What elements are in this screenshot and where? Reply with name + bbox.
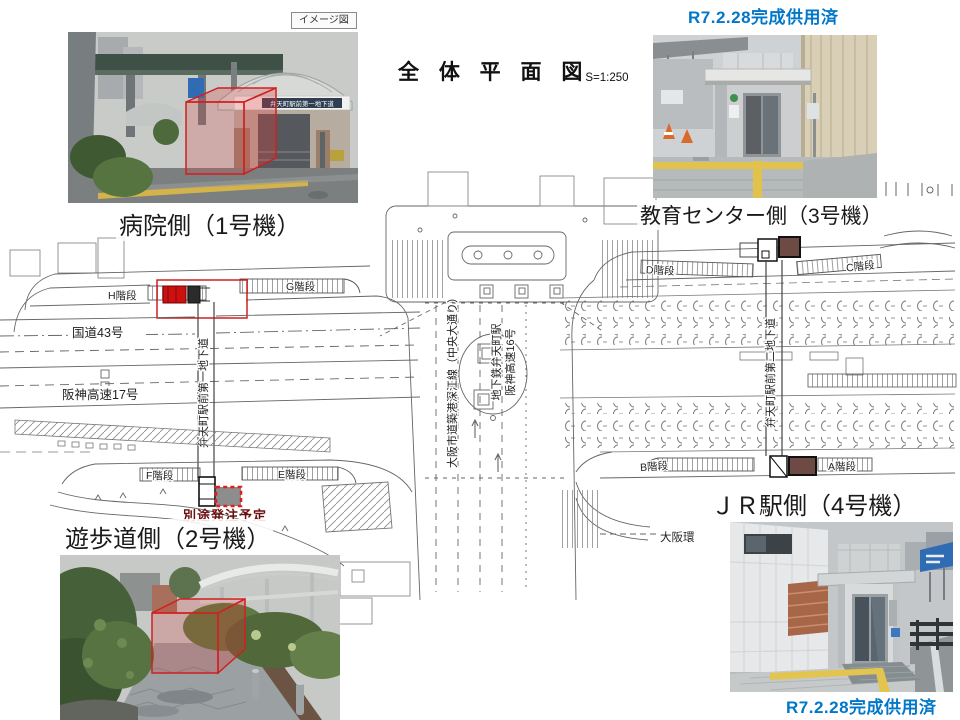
caption-unit4: ＪＲ駅側（4号機） [708,486,919,521]
photo-unit4-jr-station-side [730,522,953,692]
photo-unit3-education-center-side [653,35,877,198]
photo-unit2-promenade-side [60,555,340,720]
plan-buildings-northwest [10,238,124,278]
photo-unit4-art [730,522,953,692]
unit2-marker [199,477,241,506]
label-subway-station: 地下鉄弁天町駅 [489,324,503,401]
label-stair-h: H階段 [108,289,137,302]
photo-unit3-art [653,35,877,198]
label-route43: 国道43号 [72,326,123,340]
caption-unit1: 病院側（1号機） [116,206,303,241]
status-bottom-right: R7.2.28完成供用済 [786,693,937,718]
label-stair-f: F階段 [146,469,174,482]
label-chuo-odori: 大阪市道築港深江線（中央大通り） [445,292,459,468]
label-stair-a: A階段 [828,460,857,473]
label-hanshin16: 阪神高速16号 [503,328,517,395]
page-title: 全 体 平 面 図S=1:250 [398,56,629,86]
page-title-scale: S=1:250 [585,72,628,84]
caption-unit2: 遊歩道側（2号機） [62,519,273,554]
plan-rail-ticks-northeast [886,182,952,196]
photo-unit1-signboard: 弁天町駅前第一地下道 [270,99,335,108]
label-hanshin17: 阪神高速17号 [62,387,138,402]
photo-unit2-highlight-box [152,599,245,673]
label-stair-d: D階段 [646,263,676,278]
photo-unit1-highlight-box [186,88,276,174]
label-underpass2: 弁天町駅前第二地下道 [763,318,777,428]
label-osaka-loop-partial: 大阪環 [660,530,695,544]
plan-median-island [380,172,658,336]
plan-north-sidewalk-left [14,266,408,332]
plan-southwest-hatch [0,420,330,452]
slide: H階段 G階段 [0,0,960,720]
page-title-text: 全 体 平 面 図 [398,61,589,84]
caption-unit3: 教育センター側（3号機） [637,200,886,230]
image-figure-tag: イメージ図 [291,12,357,29]
photo-unit1-hospital-side: 弁天町駅前第一地下道 [68,32,358,203]
plan-railway-zone [560,279,956,452]
photo-unit1-art: 弁天町駅前第一地下道 [68,32,358,203]
unit4-marker [770,456,816,477]
photo-unit2-art [60,555,340,720]
label-stair-g: G階段 [286,280,316,293]
label-stair-b: B階段 [640,459,669,474]
label-stair-e: E階段 [278,468,307,481]
status-top-right: R7.2.28完成供用済 [688,3,839,28]
